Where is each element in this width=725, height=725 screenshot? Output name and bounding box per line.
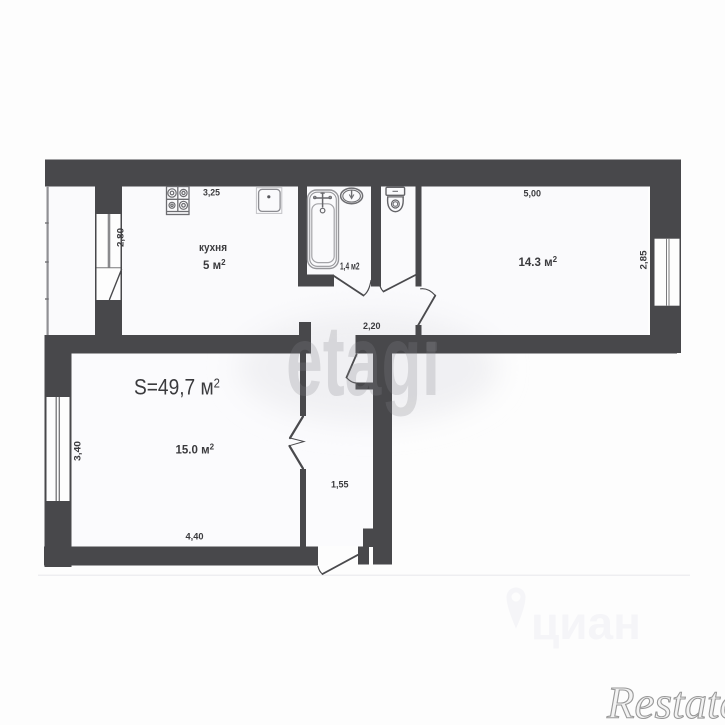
svg-text:Restate: Restate	[606, 678, 725, 725]
svg-text:S=49,7 м2: S=49,7 м2	[134, 375, 220, 400]
svg-text:14.3 м2: 14.3 м2	[519, 255, 558, 269]
svg-text:1,55: 1,55	[331, 479, 349, 490]
svg-text:2,80: 2,80	[115, 228, 126, 247]
svg-text:5,00: 5,00	[524, 188, 542, 199]
svg-text:2,85: 2,85	[638, 250, 649, 270]
svg-text:2,20: 2,20	[363, 321, 381, 332]
svg-text:1,4 м2: 1,4 м2	[340, 262, 360, 273]
svg-text:кухня: кухня	[199, 242, 227, 254]
svg-text:циан: циан	[531, 597, 641, 649]
svg-text:4,40: 4,40	[186, 531, 204, 542]
svg-text:3,40: 3,40	[72, 441, 83, 461]
svg-text:3,25: 3,25	[203, 187, 221, 198]
svg-text:15.0 м2: 15.0 м2	[176, 443, 215, 457]
